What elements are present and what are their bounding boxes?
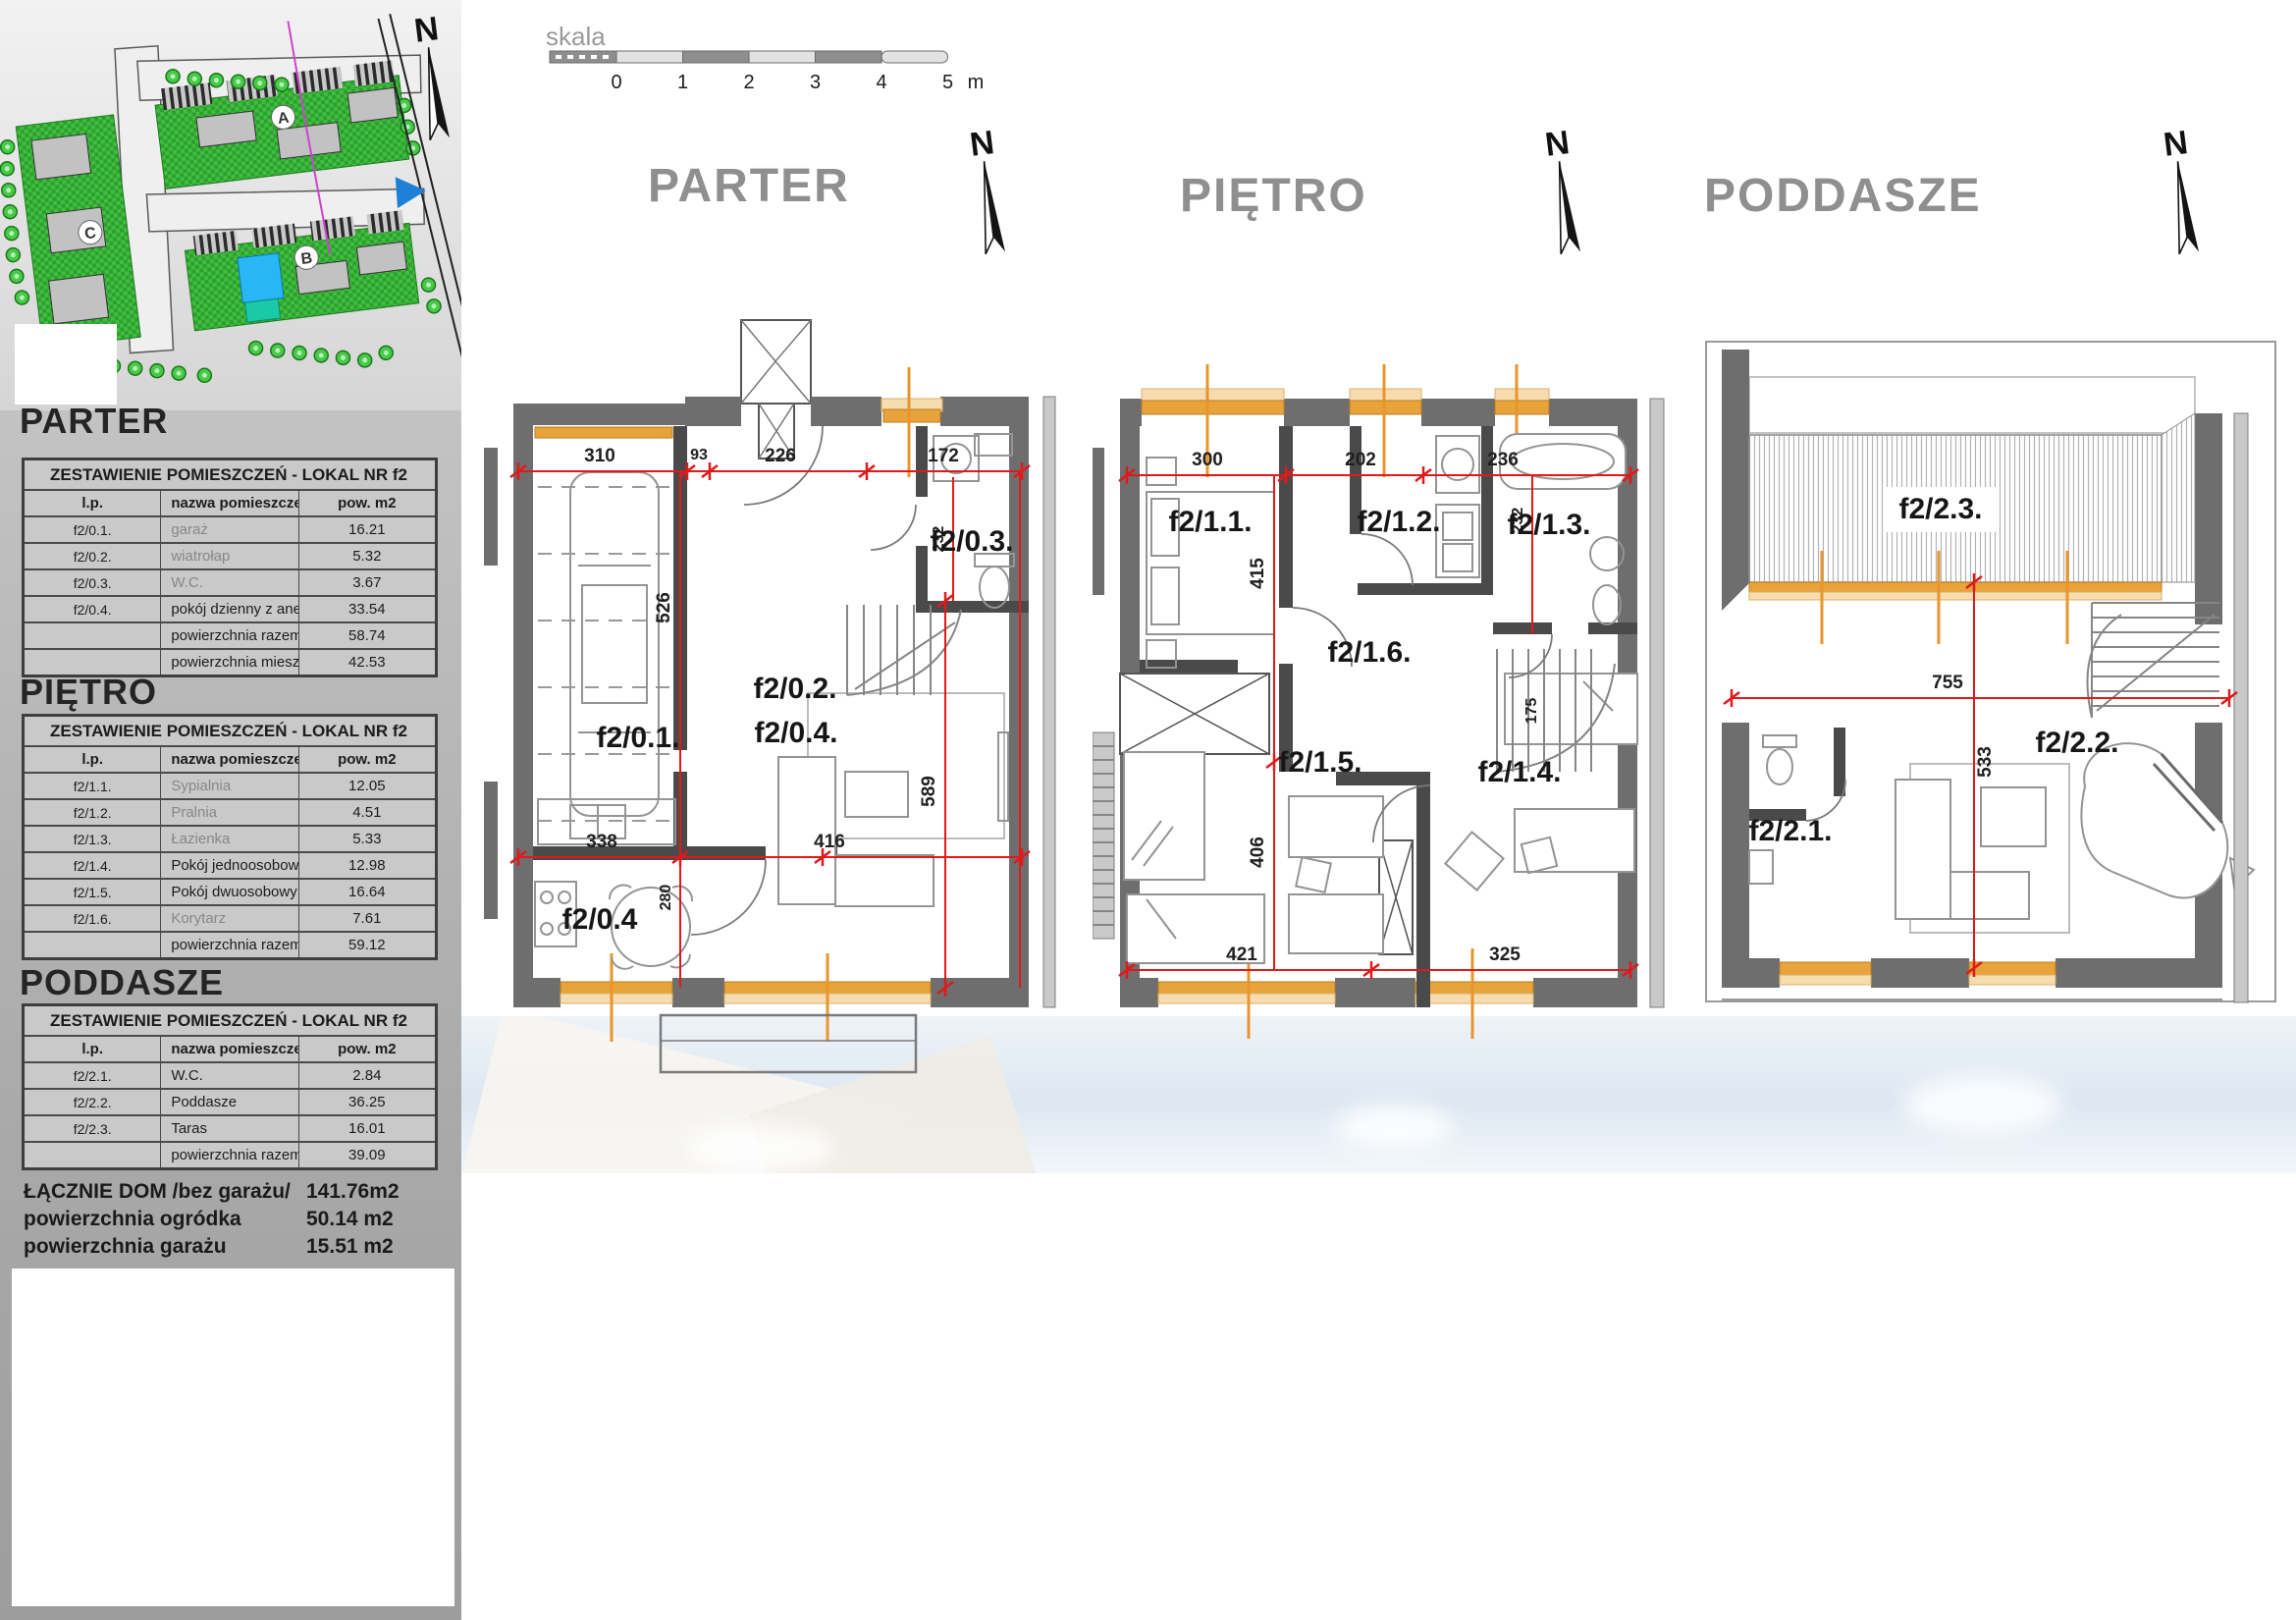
table-row: f2/1.1. Sypialnia 12.05 <box>24 773 437 799</box>
bottom-wall <box>1722 958 2222 999</box>
cell-area: 58.74 <box>298 622 436 649</box>
desk <box>1289 796 1383 857</box>
neighbor-stair-sliver <box>1093 732 1114 939</box>
cloud <box>687 1124 834 1173</box>
cloud <box>1335 1105 1453 1150</box>
cell-area: 5.33 <box>298 826 436 852</box>
cell-lp: f2/1.2. <box>24 799 161 826</box>
col-header-lp: l.p. <box>24 746 161 773</box>
svg-text:3: 3 <box>810 72 821 93</box>
total-value: 141.76m2 <box>306 1178 400 1206</box>
cell-name: powierzchnia razem <box>161 932 298 959</box>
table-row: f2/0.3. W.C. 3.67 <box>24 569 437 596</box>
north-arrow-pietro: N <box>1529 125 1599 268</box>
cell-name: W.C. <box>161 569 298 596</box>
col-header-name: nazwa pomieszczenia <box>161 1036 298 1062</box>
total-label: ŁĄCZNIE DOM /bez garażu/ <box>24 1178 306 1206</box>
cell-lp: f2/1.5. <box>24 879 161 905</box>
cell-area: 16.01 <box>298 1115 436 1142</box>
svg-text:175: 175 <box>1523 698 1540 725</box>
room-label-attic: f2/2.2. <box>2035 727 2118 759</box>
cell-area: 39.09 <box>298 1142 436 1169</box>
svg-text:1: 1 <box>677 72 688 93</box>
room-label-kitchen: f2/0.4 <box>562 903 638 936</box>
table-row: powierzchnia razem bez tarasu 39.09 <box>24 1142 437 1169</box>
table-title: ZESTAWIENIE POMIESZCZEŃ - LOKAL NR f2 <box>24 459 437 491</box>
table-row: f2/1.4. Pokój jednoosobowy 12.98 <box>24 852 437 879</box>
cell-lp: f2/1.1. <box>24 773 161 799</box>
cluster-b-label: B <box>300 250 314 268</box>
plan-title-parter: PARTER <box>648 159 850 213</box>
cloud <box>1904 1075 2061 1134</box>
cell-lp: f2/0.3. <box>24 569 161 596</box>
laundry-12 <box>1436 436 1479 577</box>
col-header-area: pow. m2 <box>298 490 436 516</box>
svg-text:415: 415 <box>1248 558 1268 589</box>
svg-text:526: 526 <box>654 592 674 623</box>
room-label-garage: f2/0.1. <box>596 722 679 754</box>
svg-text:5: 5 <box>942 72 953 93</box>
room-label-terrace: f2/2.3. <box>1898 493 1982 525</box>
cell-lp: f2/2.2. <box>24 1089 161 1115</box>
north-label: N <box>2148 125 2204 162</box>
svg-text:421: 421 <box>1226 945 1257 965</box>
north-label: N <box>399 11 454 48</box>
north-label: N <box>1529 125 1585 162</box>
sofa <box>778 757 835 904</box>
cell-lp <box>24 932 161 959</box>
cell-lp: f2/2.3. <box>24 1115 161 1142</box>
cell-name: W.C. <box>161 1062 298 1089</box>
room-label-wc: f2/2.1. <box>1748 815 1832 847</box>
table-row: f2/0.4. pokój dzienny z aneksem kuchenny… <box>24 596 437 622</box>
north-arrow-poddasze: N <box>2148 125 2217 268</box>
room-label-entry: f2/0.2. <box>753 673 836 705</box>
cell-area: 33.54 <box>298 596 436 622</box>
table-row: powierzchnia razem 58.74 <box>24 622 437 649</box>
cell-area: 12.05 <box>298 773 436 799</box>
cell-area: 16.21 <box>298 516 436 543</box>
col-header-lp: l.p. <box>24 490 161 516</box>
svg-text:325: 325 <box>1489 945 1521 965</box>
totals-block: ŁĄCZNIE DOM /bez garażu/ 141.76m2 powier… <box>24 1178 400 1261</box>
total-row: ŁĄCZNIE DOM /bez garażu/ 141.76m2 <box>24 1178 400 1206</box>
svg-text:93: 93 <box>690 447 708 463</box>
table-poddasze: ZESTAWIENIE POMIESZCZEŃ - LOKAL NR f2 l.… <box>22 1003 438 1170</box>
scale-bar-segments <box>550 51 948 63</box>
table-row: f2/0.1. garaż 16.21 <box>24 516 437 543</box>
svg-text:416: 416 <box>814 832 845 852</box>
cell-lp: f2/1.6. <box>24 905 161 932</box>
table-row: f2/0.2. wiatrołap 5.32 <box>24 543 437 569</box>
cell-area: 12.98 <box>298 852 436 879</box>
room-label-12: f2/1.2. <box>1357 506 1440 538</box>
scale-unit: m <box>968 72 985 93</box>
table-row: f2/2.3. Taras 16.01 <box>24 1115 437 1142</box>
cell-lp: f2/1.3. <box>24 826 161 852</box>
cell-name: powierzchnia razem bez tarasu <box>161 1142 298 1169</box>
table-row: f2/2.2. Poddasze 36.25 <box>24 1089 437 1115</box>
plan-poddasze: 755 533 f2/2.3. f2/2.1. f2/2.2. <box>1684 320 2294 1047</box>
room-label-11: f2/1.1. <box>1168 506 1252 538</box>
table-row: f2/1.5. Pokój dwuosobowy 16.64 <box>24 879 437 905</box>
room-label-13: f2/1.3. <box>1507 509 1590 541</box>
svg-text:310: 310 <box>584 446 615 466</box>
cell-lp <box>24 622 161 649</box>
total-row: powierzchnia ogródka 50.14 m2 <box>24 1206 400 1233</box>
total-value: 50.14 m2 <box>306 1206 394 1233</box>
table-row: f2/2.1. W.C. 2.84 <box>24 1062 437 1089</box>
cell-area: 36.25 <box>298 1089 436 1115</box>
north-arrow-parter: N <box>954 125 1024 268</box>
notes-white-box <box>12 1269 454 1606</box>
cell-lp <box>24 1142 161 1169</box>
desk <box>1289 894 1383 953</box>
col-header-name: nazwa pomieszczenia <box>161 746 298 773</box>
floorplan-sheet: A B C <box>0 0 2296 1620</box>
svg-text:338: 338 <box>586 832 617 852</box>
plan-title-poddasze: PODDASZE <box>1704 169 1982 223</box>
cell-name: Łazienka <box>161 826 298 852</box>
scale-bar: 0 1 2 3 4 5 m <box>548 47 999 98</box>
table-parter: ZESTAWIENIE POMIESZCZEŃ - LOKAL NR f2 l.… <box>22 458 438 677</box>
svg-text:4: 4 <box>876 72 886 93</box>
room-label-16: f2/1.6. <box>1327 636 1411 669</box>
table-row: f2/1.2. Pralnia 4.51 <box>24 799 437 826</box>
total-label: powierzchnia ogródka <box>24 1206 306 1233</box>
cell-lp: f2/0.1. <box>24 516 161 543</box>
cell-name: wiatrołap <box>161 543 298 569</box>
table-row: f2/1.3. Łazienka 5.33 <box>24 826 437 852</box>
terrace-outline <box>661 1015 916 1072</box>
col-header-name: nazwa pomieszczenia <box>161 490 298 516</box>
cell-name: powierzchnia mieszkalna (bez garażu) <box>161 649 298 676</box>
svg-text:2: 2 <box>743 72 754 93</box>
table-row: f2/1.6. Korytarz 7.61 <box>24 905 437 932</box>
cell-name: Pralnia <box>161 799 298 826</box>
svg-text:533: 533 <box>1975 746 1996 778</box>
svg-text:172: 172 <box>928 446 959 466</box>
table-row: powierzchnia razem 59.12 <box>24 932 437 959</box>
total-label: powierzchnia garażu <box>24 1233 306 1261</box>
svg-text:236: 236 <box>1487 450 1519 470</box>
svg-text:0: 0 <box>611 72 621 93</box>
cell-lp: f2/0.4. <box>24 596 161 622</box>
svg-text:406: 406 <box>1248 837 1268 868</box>
table-pietro: ZESTAWIENIE POMIESZCZEŃ - LOKAL NR f2 l.… <box>22 714 438 960</box>
cell-area: 16.64 <box>298 879 436 905</box>
cell-name: Pokój jednoosobowy <box>161 852 298 879</box>
col-header-lp: l.p. <box>24 1036 161 1062</box>
room-label-15: f2/1.5. <box>1278 746 1362 779</box>
cell-area: 42.53 <box>298 649 436 676</box>
plan-title-pietro: PIĘTRO <box>1180 169 1367 223</box>
highlighted-unit-f2 <box>238 253 284 303</box>
table-title: ZESTAWIENIE POMIESZCZEŃ - LOKAL NR f2 <box>24 1005 437 1037</box>
total-value: 15.51 m2 <box>306 1233 394 1261</box>
plan-parter: 310 93 226 172 526 232 589 338 416 280 f… <box>484 310 1058 1086</box>
svg-text:300: 300 <box>1192 450 1223 470</box>
plan-pietro: 300 202 236 415 406 232 175 421 325 f2/1… <box>1093 310 1677 1056</box>
svg-text:280: 280 <box>658 885 674 911</box>
north-label: N <box>954 125 1010 162</box>
cell-area: 4.51 <box>298 799 436 826</box>
cell-area: 2.84 <box>298 1062 436 1089</box>
bed <box>1124 752 1204 880</box>
bathtub <box>1500 434 1626 489</box>
sidebar-heading-poddasze: PODDASZE <box>20 962 224 1003</box>
cell-lp: f2/0.2. <box>24 543 161 569</box>
table <box>1981 787 2046 846</box>
cell-lp: f2/1.4. <box>24 852 161 879</box>
col-header-area: pow. m2 <box>298 746 436 773</box>
cell-name: Poddasze <box>161 1089 298 1115</box>
cell-name: Pokój dwuosobowy <box>161 879 298 905</box>
svg-text:202: 202 <box>1345 450 1376 470</box>
table-title: ZESTAWIENIE POMIESZCZEŃ - LOKAL NR f2 <box>24 716 437 747</box>
cell-name: pokój dzienny z aneksem kuchennym <box>161 596 298 622</box>
col-header-area: pow. m2 <box>298 1036 436 1062</box>
cell-name: Taras <box>161 1115 298 1142</box>
cell-area: 3.67 <box>298 569 436 596</box>
room-label-wc: f2/0.3. <box>930 525 1013 558</box>
desk <box>1515 809 1634 872</box>
cell-name: powierzchnia razem <box>161 622 298 649</box>
room-label-14: f2/1.4. <box>1477 756 1561 788</box>
cell-area: 5.32 <box>298 543 436 569</box>
cell-name: Sypialnia <box>161 773 298 799</box>
cell-lp: f2/2.1. <box>24 1062 161 1089</box>
scale-bar-ticks: 0 1 2 3 4 5 m <box>611 72 984 93</box>
svg-text:226: 226 <box>765 446 796 466</box>
white-patch <box>15 324 117 405</box>
sidebar-heading-pietro: PIĘTRO <box>20 672 157 713</box>
cell-area: 59.12 <box>298 932 436 959</box>
sofa <box>1896 780 1950 919</box>
svg-text:589: 589 <box>919 776 939 807</box>
coffee-table <box>845 772 908 817</box>
cell-name: Korytarz <box>161 905 298 932</box>
total-row: powierzchnia garażu 15.51 m2 <box>24 1233 400 1261</box>
cell-name: garaż <box>161 516 298 543</box>
cell-area: 7.61 <box>298 905 436 932</box>
room-label-living: f2/0.4. <box>754 717 837 749</box>
sidebar-heading-parter: PARTER <box>20 401 168 442</box>
svg-text:755: 755 <box>1932 673 1963 693</box>
